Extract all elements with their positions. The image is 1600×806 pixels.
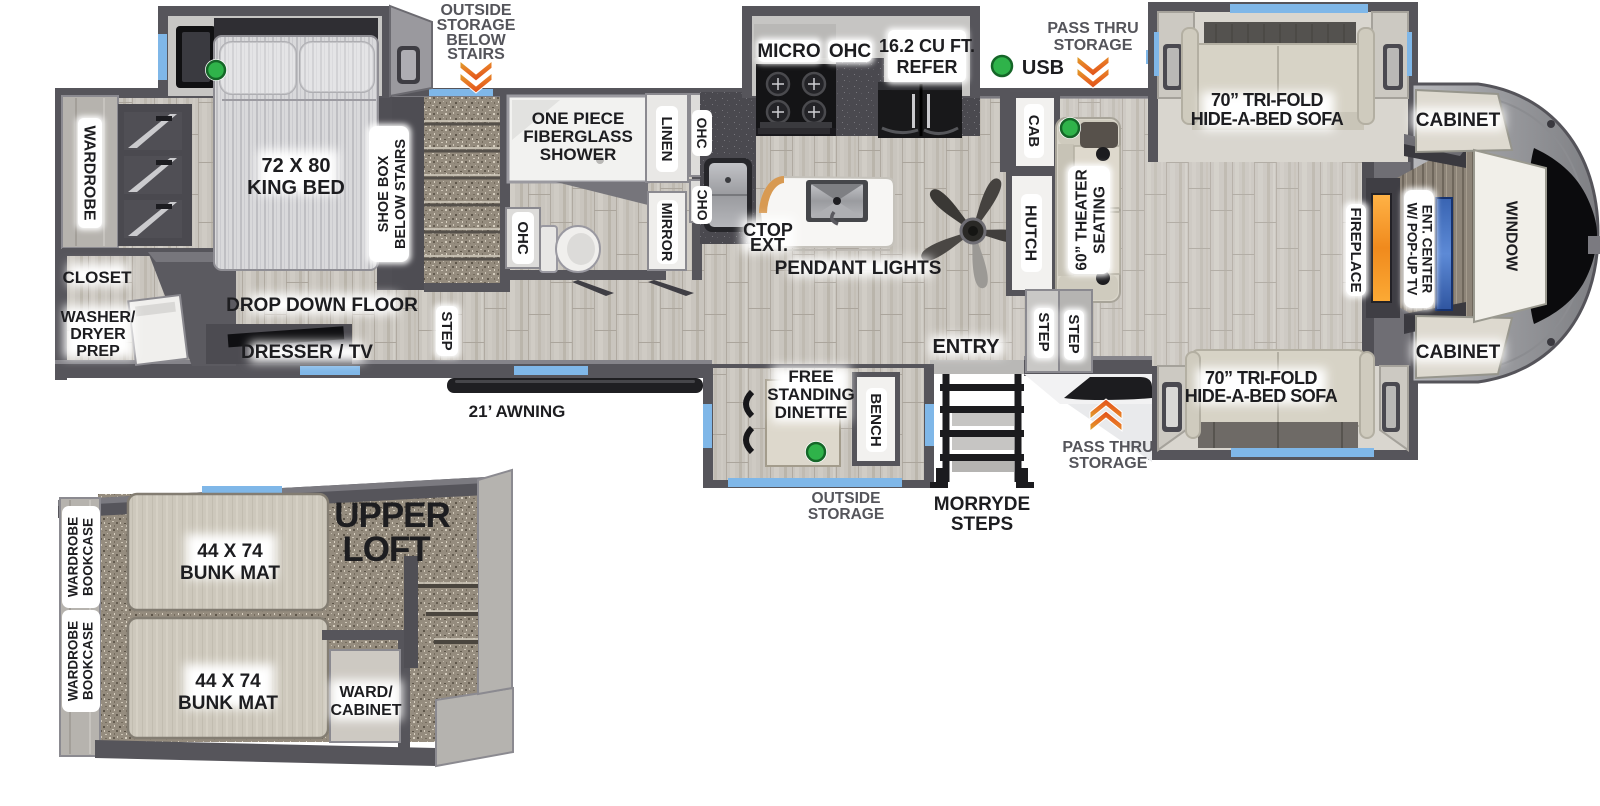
svg-text:STEPS: STEPS bbox=[951, 514, 1013, 535]
svg-text:OHC: OHC bbox=[694, 189, 710, 220]
svg-text:CABINET: CABINET bbox=[1416, 342, 1501, 363]
svg-text:PREP: PREP bbox=[76, 343, 120, 360]
svg-text:OHC: OHC bbox=[694, 117, 710, 148]
svg-text:44 X 74: 44 X 74 bbox=[197, 541, 263, 562]
svg-text:BELOW STAIRS: BELOW STAIRS bbox=[393, 139, 409, 249]
svg-text:STORAGE: STORAGE bbox=[808, 506, 884, 523]
svg-text:LINEN: LINEN bbox=[658, 117, 675, 162]
svg-text:W/ POP-UP TV: W/ POP-UP TV bbox=[1404, 203, 1419, 296]
svg-text:ENTRY: ENTRY bbox=[932, 336, 1000, 358]
svg-text:BENCH: BENCH bbox=[867, 393, 884, 446]
svg-text:STEP: STEP bbox=[438, 311, 455, 350]
svg-text:ONE PIECE: ONE PIECE bbox=[532, 109, 625, 128]
svg-text:70” TRI-FOLD: 70” TRI-FOLD bbox=[1205, 368, 1318, 388]
svg-text:72 X 80: 72 X 80 bbox=[262, 155, 331, 177]
svg-text:BUNK MAT: BUNK MAT bbox=[180, 563, 280, 584]
svg-text:OHC: OHC bbox=[829, 41, 872, 62]
svg-text:SHOE BOX: SHOE BOX bbox=[376, 155, 392, 232]
svg-text:FIBERGLASS: FIBERGLASS bbox=[523, 127, 633, 146]
svg-text:16.2 CU FT.: 16.2 CU FT. bbox=[879, 36, 975, 56]
svg-text:EXT.: EXT. bbox=[750, 235, 788, 255]
svg-text:MORRYDE: MORRYDE bbox=[934, 494, 1030, 515]
svg-text:BUNK MAT: BUNK MAT bbox=[178, 693, 278, 714]
svg-text:WARDROBE: WARDROBE bbox=[80, 125, 97, 220]
svg-text:HIDE-A-BED SOFA: HIDE-A-BED SOFA bbox=[1191, 109, 1344, 129]
svg-text:WARDROBE: WARDROBE bbox=[66, 517, 81, 597]
svg-text:DINETTE: DINETTE bbox=[775, 403, 848, 422]
svg-text:STORAGE: STORAGE bbox=[1054, 37, 1133, 54]
svg-text:STEP: STEP bbox=[1035, 312, 1052, 351]
svg-text:FREE: FREE bbox=[788, 367, 833, 386]
svg-text:PASS THRU: PASS THRU bbox=[1062, 439, 1153, 456]
svg-text:SHOWER: SHOWER bbox=[540, 145, 617, 164]
svg-text:LOFT: LOFT bbox=[342, 530, 430, 569]
svg-text:STORAGE: STORAGE bbox=[1069, 455, 1148, 472]
svg-text:BOOKCASE: BOOKCASE bbox=[81, 518, 96, 596]
svg-text:WASHER/: WASHER/ bbox=[61, 309, 136, 326]
svg-text:PASS THRU: PASS THRU bbox=[1047, 20, 1138, 37]
svg-text:60” THEATER: 60” THEATER bbox=[1073, 169, 1090, 270]
svg-text:STEP: STEP bbox=[1065, 314, 1082, 353]
svg-text:CABINET: CABINET bbox=[1416, 110, 1501, 131]
svg-text:KING BED: KING BED bbox=[247, 177, 345, 199]
svg-text:HUTCH: HUTCH bbox=[1021, 205, 1038, 261]
svg-text:WINDOW: WINDOW bbox=[1502, 201, 1519, 272]
svg-text:OUTSIDE: OUTSIDE bbox=[812, 490, 881, 507]
svg-text:CLOSET: CLOSET bbox=[63, 268, 133, 287]
svg-text:SEATING: SEATING bbox=[1091, 186, 1108, 254]
svg-text:STANDING: STANDING bbox=[767, 385, 855, 404]
svg-text:USB: USB bbox=[1022, 57, 1064, 79]
svg-text:CABINET: CABINET bbox=[330, 702, 401, 719]
svg-text:HIDE-A-BED SOFA: HIDE-A-BED SOFA bbox=[1185, 386, 1338, 406]
svg-text:WARD/: WARD/ bbox=[339, 684, 393, 701]
svg-text:MIRROR: MIRROR bbox=[658, 203, 674, 262]
svg-text:DROP DOWN FLOOR: DROP DOWN FLOOR bbox=[226, 295, 418, 316]
svg-text:MICRO: MICRO bbox=[757, 41, 820, 62]
svg-text:PENDANT LIGHTS: PENDANT LIGHTS bbox=[775, 258, 942, 279]
svg-text:70” TRI-FOLD: 70” TRI-FOLD bbox=[1211, 90, 1324, 110]
svg-text:CAB: CAB bbox=[1025, 115, 1042, 148]
svg-text:21’ AWNING: 21’ AWNING bbox=[469, 402, 566, 421]
svg-text:DRYER: DRYER bbox=[70, 326, 126, 343]
svg-text:44 X 74: 44 X 74 bbox=[195, 671, 261, 692]
svg-text:STAIRS: STAIRS bbox=[447, 46, 505, 63]
svg-text:DRESSER / TV: DRESSER / TV bbox=[241, 342, 373, 363]
svg-text:REFER: REFER bbox=[896, 57, 957, 77]
svg-text:WARDROBE: WARDROBE bbox=[66, 621, 81, 701]
svg-text:ENT. CENTER: ENT. CENTER bbox=[1419, 205, 1434, 294]
svg-text:FIREPLACE: FIREPLACE bbox=[1347, 207, 1364, 292]
svg-text:OHC: OHC bbox=[514, 221, 531, 255]
svg-text:BOOKCASE: BOOKCASE bbox=[81, 622, 96, 700]
